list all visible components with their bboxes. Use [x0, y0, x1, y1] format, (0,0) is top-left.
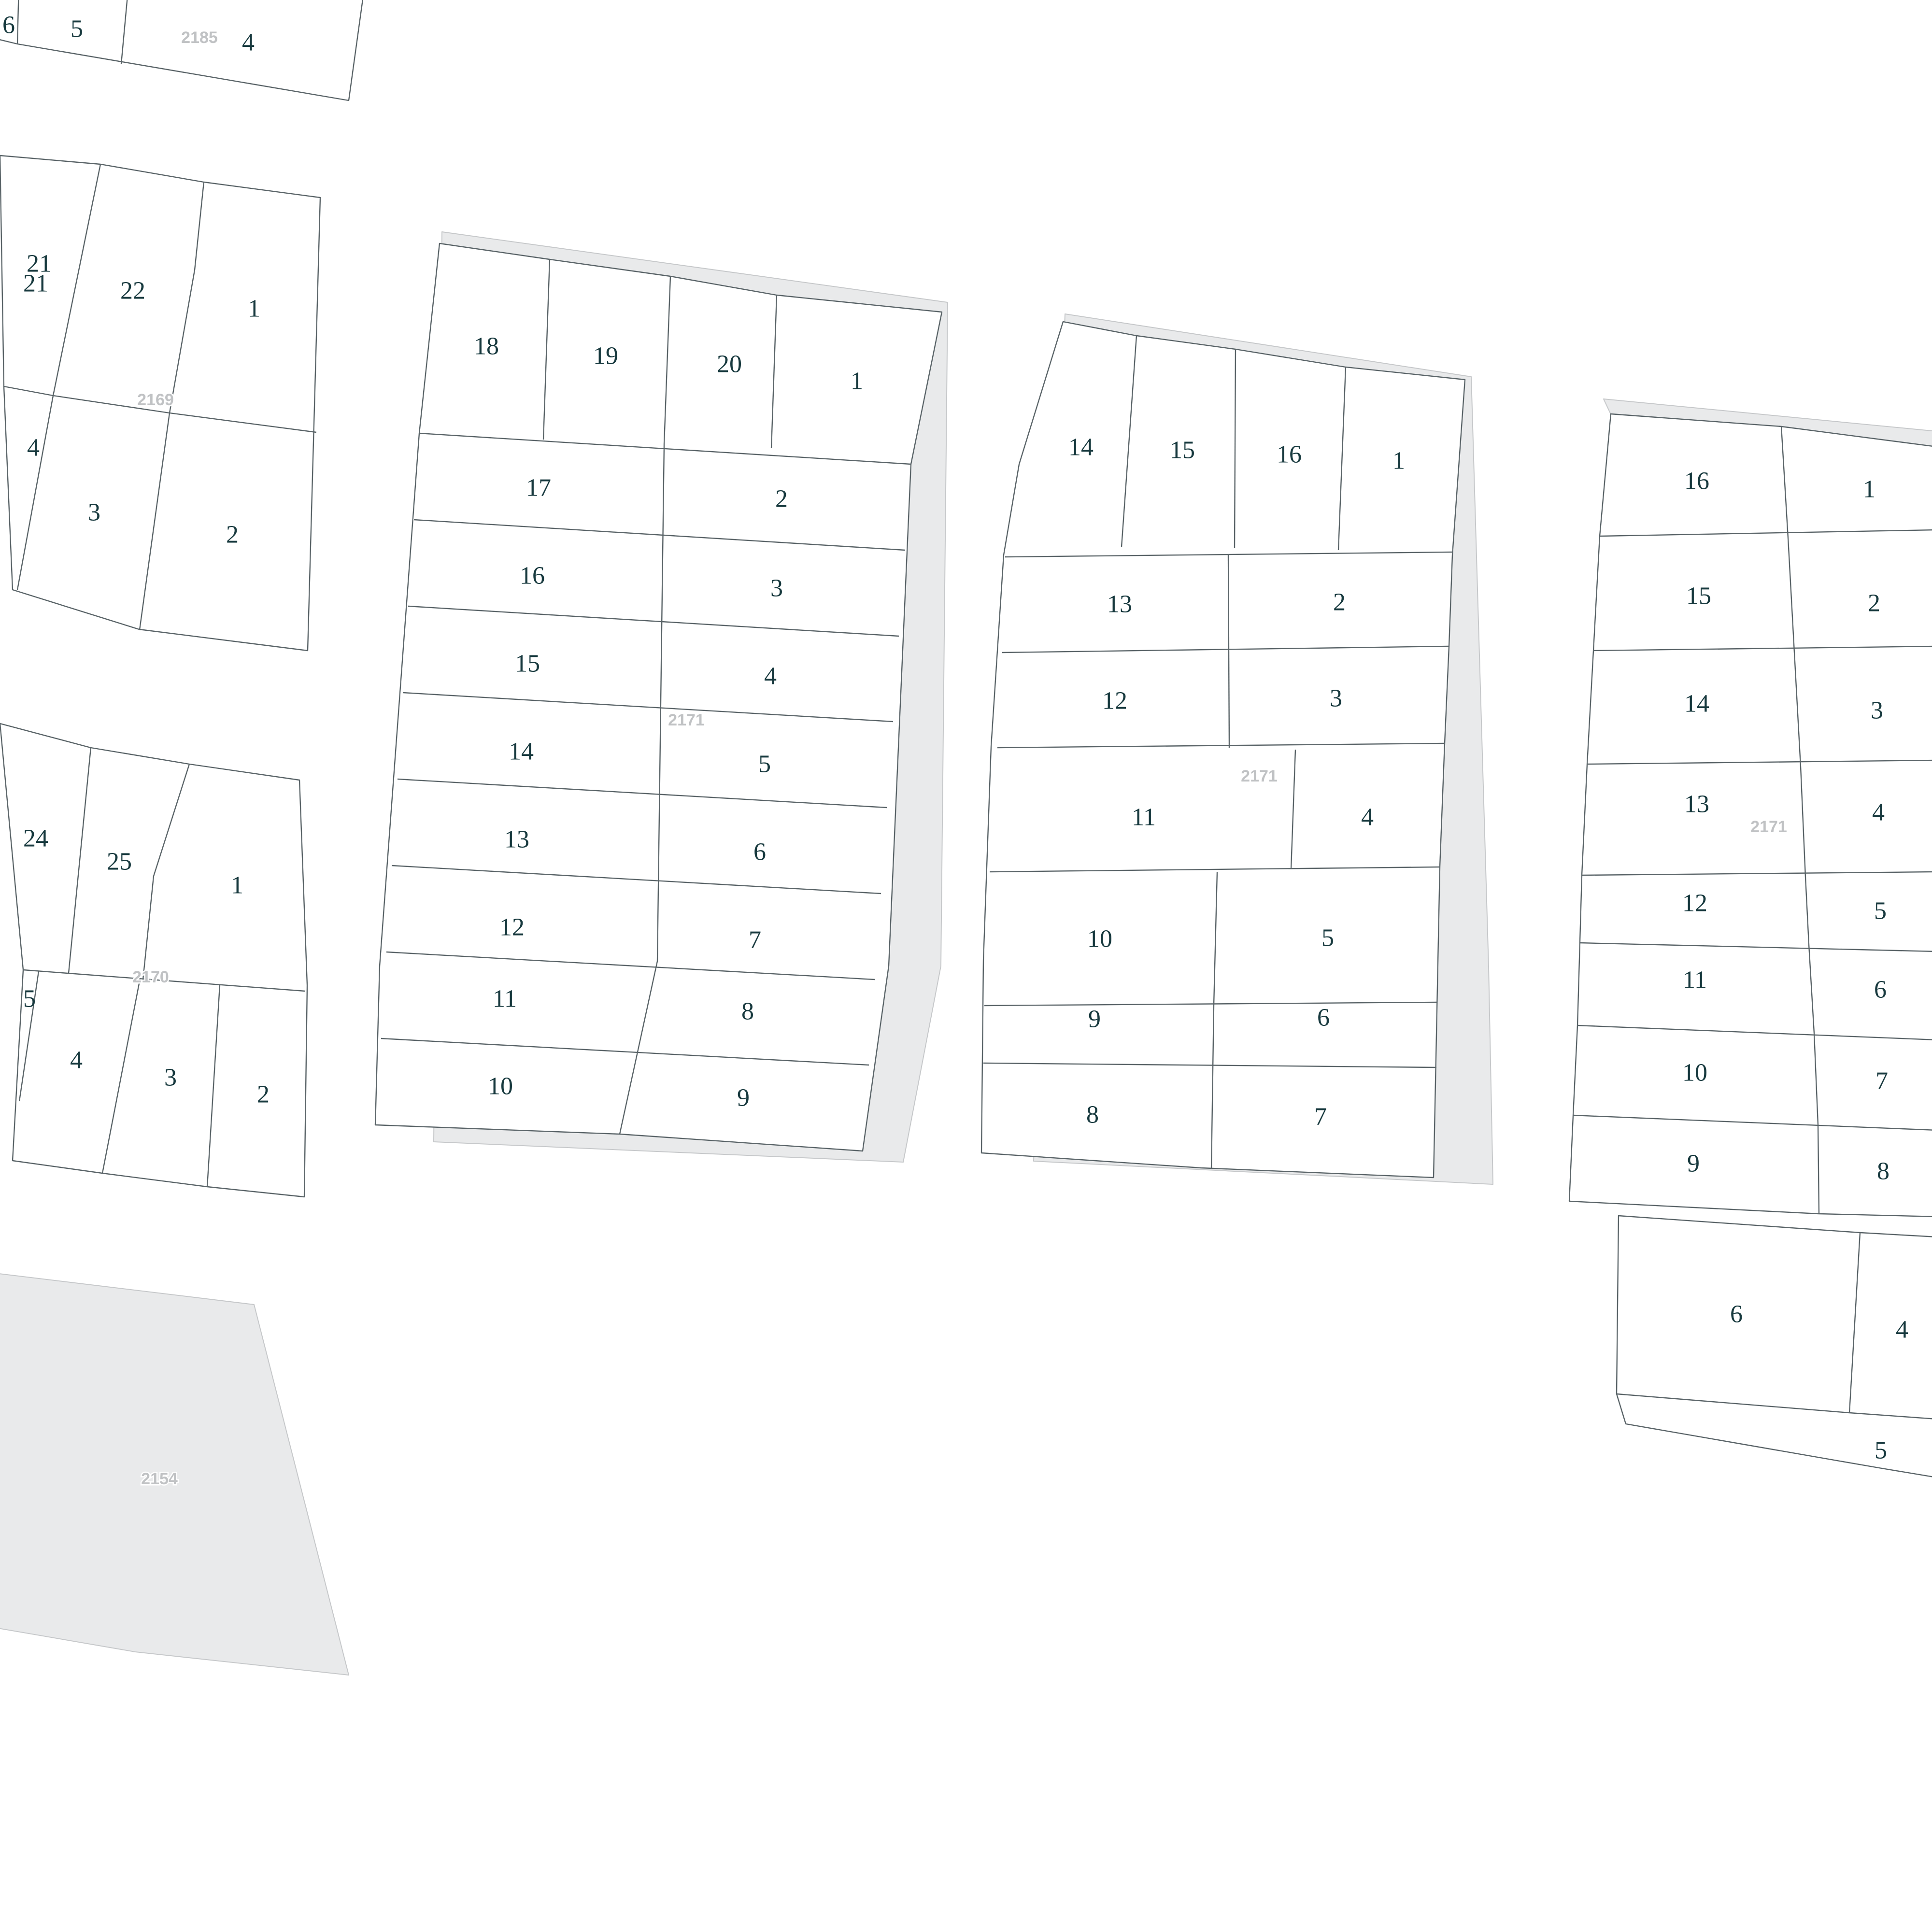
block-2171-far-east-parcel-7-label: 7	[1875, 1067, 1888, 1095]
block-2171-east-parcel-13-label: 13	[1107, 591, 1132, 618]
block-2171-center-parcel-16-label: 16	[520, 562, 545, 590]
block-2171-east-parcel-8-label: 8	[1086, 1101, 1099, 1129]
block-2185: 2185654	[0, 0, 365, 100]
block-2171-center-parcel-8-label: 8	[741, 998, 754, 1025]
block-2185-parcel-6-label: 6	[2, 12, 15, 39]
block-2170-parcel-2-label: 2	[257, 1081, 270, 1108]
block-2169-parcel-1-label: 1	[248, 295, 260, 323]
block-southeast-parcel-4-label: 4	[1896, 1316, 1908, 1344]
block-2171-center-parcel-17-label: 17	[526, 474, 551, 502]
block-2171-far-east-parcel-1-label: 1	[1863, 476, 1875, 503]
block-2171-far-east-parcel-12-label: 12	[1682, 890, 1707, 917]
block-2169-parcel-22-label: 22	[120, 277, 145, 305]
block-2169-parcel-21-label: 21	[23, 270, 48, 298]
block-2171-center-parcel-1-label: 1	[851, 368, 863, 395]
block-2171-far-east-label: 2171	[1750, 818, 1787, 836]
block-2171-center-parcel-13-label: 13	[504, 826, 529, 853]
block-2171-far-east-parcel-8-label: 8	[1877, 1158, 1889, 1185]
block-2171-center-parcel-11-label: 11	[493, 985, 517, 1013]
block-2169-parcel-4-label: 4	[27, 434, 40, 462]
block-2171-center-label: 2171	[668, 711, 705, 729]
block-southeast-parcel-6-label: 6	[1730, 1301, 1743, 1328]
block-2185-label: 2185	[181, 28, 218, 47]
block-2171-center-parcel-10-label: 10	[488, 1073, 513, 1100]
block-2171-center-parcel-6-label: 6	[753, 838, 766, 866]
block-2171-center-parcel-4-label: 4	[764, 663, 777, 690]
block-2171-east-parcel-11-label: 11	[1132, 804, 1156, 831]
block-2170-parcel-25-label: 25	[107, 848, 132, 876]
block-2171-center: 21711819201172163154145136127118109	[375, 243, 942, 1151]
block-2170-parcel-24-label: 24	[23, 825, 48, 852]
block-2170-parcel-5-label: 5	[23, 985, 36, 1013]
block-2169-parcel-2-label: 2	[226, 521, 239, 549]
block-southeast-parcel-5-label: 5	[1875, 1437, 1887, 1464]
block-2171-far-east-parcel-4-label: 4	[1872, 799, 1885, 826]
block-2171-far-east-parcel-5-label: 5	[1874, 897, 1887, 925]
block-southeast: 645	[1617, 1216, 1932, 1477]
block-2171-far-east-parcel-14-label: 14	[1684, 690, 1709, 718]
block-2171-far-east: 217116115214313412511610798	[1569, 414, 1932, 1217]
block-2171-east-parcel-7-label: 7	[1314, 1103, 1327, 1131]
block-2171-east: 217114151611321231141059687	[981, 322, 1465, 1178]
block-2171-far-east-parcel-15-label: 15	[1686, 582, 1711, 610]
block-2171-center-parcel-3-label: 3	[770, 575, 783, 602]
block-2171-far-east-parcel-10-label: 10	[1682, 1059, 1707, 1087]
block-2171-center-parcel-14-label: 14	[509, 738, 534, 766]
block-2171-center-parcel-5-label: 5	[758, 751, 771, 778]
block-2171-east-parcel-9-label: 9	[1088, 1006, 1101, 1033]
block-2171-east-parcel-6-label: 6	[1317, 1004, 1330, 1032]
block-2171-center-parcel-20-label: 20	[717, 351, 742, 378]
block-2171-center-parcel-9-label: 9	[737, 1084, 750, 1112]
block-2171-east-parcel-2-label: 2	[1333, 589, 1346, 616]
block-2154: 2154	[0, 1273, 349, 1675]
block-2171-center-parcel-19-label: 19	[593, 342, 618, 370]
map-svg[interactable]: 2185654216921212214322170242515432217118…	[0, 0, 1932, 1932]
block-2171-east-parcel-5-label: 5	[1321, 924, 1334, 952]
block-2170-parcel-1-label: 1	[231, 872, 243, 899]
block-2171-far-east-parcel-11-label: 11	[1683, 966, 1707, 994]
block-2154-label: 2154	[141, 1470, 178, 1488]
block-2171-center-parcel-7-label: 7	[749, 926, 761, 954]
block-2169-label: 2169	[137, 391, 174, 409]
block-2171-far-east-parcel-6-label: 6	[1874, 976, 1887, 1004]
block-2185-parcel-5-label: 5	[71, 15, 83, 43]
block-2185-parcel-4-label: 4	[242, 29, 255, 57]
block-2171-east-parcel-10-label: 10	[1087, 925, 1112, 953]
block-2170-label: 2170	[132, 968, 169, 986]
block-2169-parcel-3-label: 3	[88, 499, 100, 526]
block-2170-parcel-3-label: 3	[164, 1064, 177, 1092]
block-2171-east-label: 2171	[1241, 767, 1278, 785]
block-2171-east-parcel-4-label: 4	[1361, 804, 1374, 831]
block-2170: 2170242515432	[0, 724, 307, 1197]
block-2171-east-parcel-12-label: 12	[1102, 687, 1127, 715]
block-2171-center-parcel-12-label: 12	[499, 914, 525, 941]
block-2171-east-parcel-3-label: 3	[1330, 685, 1342, 712]
block-2171-east-parcel-16-label: 16	[1277, 441, 1302, 469]
block-2171-east-parcel-1-label: 1	[1392, 447, 1405, 475]
block-2171-center-parcel-2-label: 2	[775, 485, 788, 513]
block-2171-far-east-parcel-9-label: 9	[1687, 1150, 1700, 1178]
block-2171-far-east-parcel-13-label: 13	[1684, 791, 1709, 818]
block-2171-east-parcel-15-label: 15	[1170, 437, 1195, 464]
cadastral-map-canvas[interactable]: 2185654216921212214322170242515432217118…	[0, 0, 1932, 1932]
block-2170-parcel-4-label: 4	[70, 1047, 83, 1074]
block-2171-center-parcel-18-label: 18	[474, 333, 499, 360]
block-2171-far-east-parcel-16-label: 16	[1684, 468, 1709, 495]
block-2171-far-east-parcel-3-label: 3	[1871, 697, 1883, 724]
block-2170-outline[interactable]	[0, 724, 307, 1197]
block-2171-east-parcel-14-label: 14	[1068, 434, 1094, 461]
block-2185-outline[interactable]	[0, 0, 365, 100]
block-2171-far-east-parcel-2-label: 2	[1868, 590, 1880, 617]
block-2169: 21692121221432	[0, 156, 320, 651]
block-2171-center-parcel-15-label: 15	[515, 650, 540, 678]
